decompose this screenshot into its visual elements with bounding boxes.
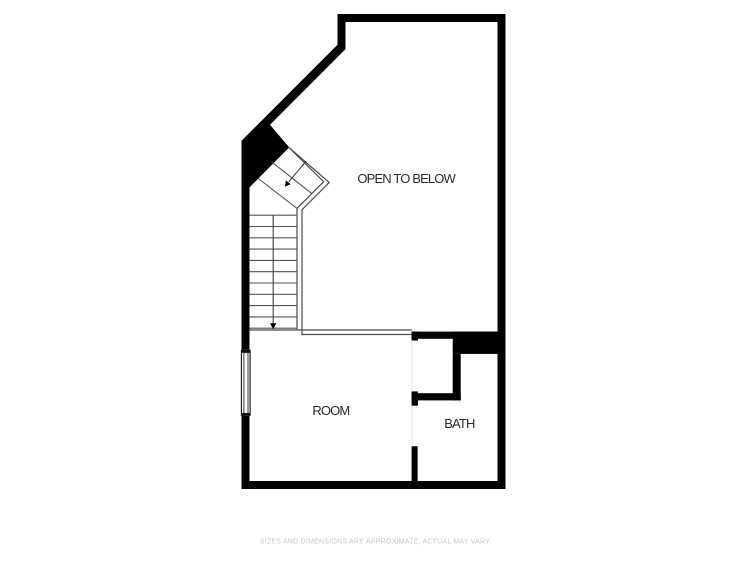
svg-text:OPEN TO BELOW: OPEN TO BELOW: [357, 171, 456, 186]
svg-text:SIZES AND DIMENSIONS ARE APPRO: SIZES AND DIMENSIONS ARE APPROXIMATE, AC…: [260, 539, 492, 546]
svg-text:ROOM: ROOM: [312, 403, 349, 418]
svg-text:BATH: BATH: [444, 416, 475, 431]
